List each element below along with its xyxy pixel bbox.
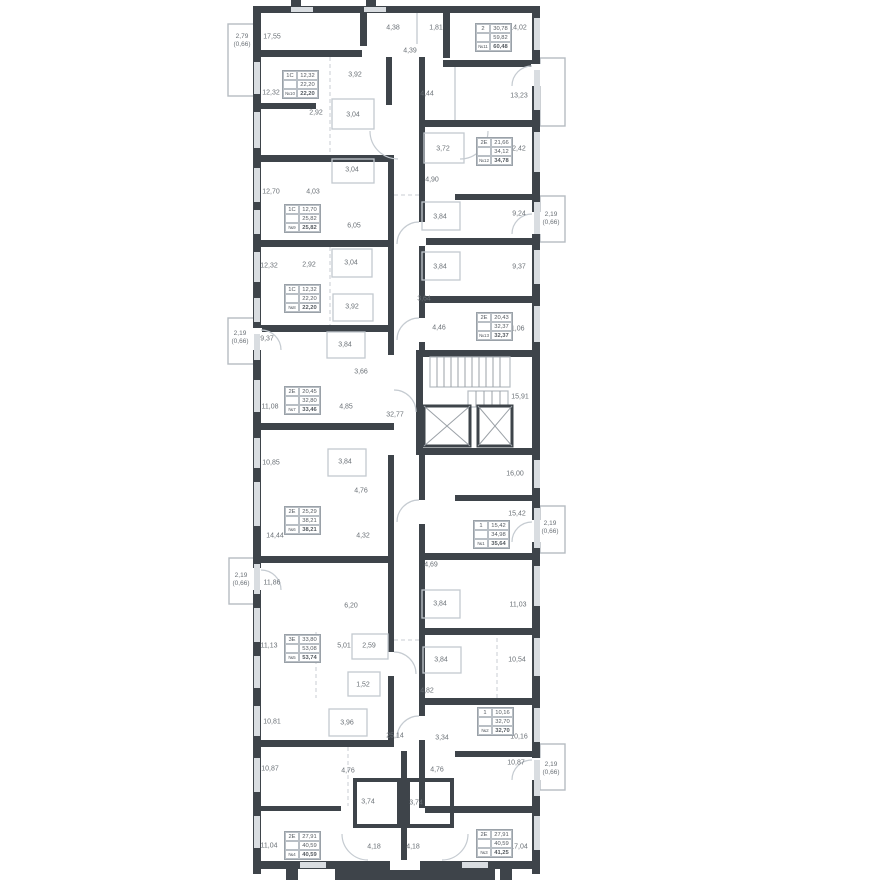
apt-spacer: [477, 147, 491, 156]
room-area-label: 3,92: [345, 304, 359, 311]
apt-total-area: 40,59: [299, 850, 320, 859]
apt-number: №3: [477, 848, 491, 857]
apt-number: №1: [474, 539, 488, 548]
apt-total-area: 33,46: [299, 405, 320, 414]
apt-living-area: 12,70: [299, 205, 320, 214]
apartment-info-box: 110,16 32,70 №232,70: [477, 707, 514, 736]
balcony-area: 2,19: [543, 211, 560, 219]
room-area-label: 4,32: [356, 533, 370, 540]
room-area-label: 11,03: [510, 602, 527, 609]
room-area-label: 4,39: [403, 48, 417, 55]
room-area-label: 10,54: [508, 657, 526, 664]
apt-living-area: 15,42: [488, 521, 509, 530]
room-area-label: 4,03: [306, 189, 320, 196]
apt-total-area: 53,74: [299, 653, 320, 662]
room-area-label: 1,52: [356, 682, 370, 689]
room-area-label: 11,08: [262, 404, 279, 411]
apt-living-area: 27,91: [491, 830, 512, 839]
apt-spacer: [474, 530, 488, 539]
apt-total-area: 41,25: [491, 848, 512, 857]
room-area-label: 3,84: [338, 342, 352, 349]
apt-area: 32,80: [299, 396, 320, 405]
room-area-label: 3,34: [435, 735, 449, 742]
balcony-coef: (0,66): [233, 580, 250, 588]
room-area-label: 4,18: [367, 844, 381, 851]
apt-total-area: 22,20: [297, 89, 318, 98]
room-area-label: 6,05: [347, 223, 361, 230]
apt-area: 53,08: [299, 644, 320, 653]
apt-area: 22,20: [297, 80, 318, 89]
room-area-label: 4,85: [339, 404, 353, 411]
room-area-label: 25,14: [386, 733, 404, 740]
apartment-info-box: 3Е33,80 53,08 №553,74: [284, 634, 321, 663]
apt-total-area: 34,78: [491, 156, 512, 165]
apt-spacer: [478, 717, 492, 726]
room-area-label: 3,64: [417, 296, 431, 303]
apt-area: 34,12: [491, 147, 512, 156]
elevators: [424, 406, 512, 446]
apt-number: №13: [477, 331, 491, 340]
apartment-info-box: 115,42 34,98 №135,64: [473, 520, 510, 549]
apartment-info-box: 2Е27,91 40,59 №341,25: [476, 829, 513, 858]
room-area-label: 2,92: [302, 262, 316, 269]
apt-total-area: 22,20: [299, 303, 320, 312]
apt-area: 22,20: [299, 294, 320, 303]
apt-total-area: 32,37: [491, 331, 512, 340]
room-area-label: 5,01: [337, 643, 351, 650]
room-area-label: 15,42: [508, 511, 526, 518]
apt-spacer: [477, 322, 491, 331]
apt-area: 25,82: [299, 214, 320, 223]
apt-total-area: 32,70: [492, 726, 513, 735]
room-area-label: 1,81: [429, 25, 443, 32]
room-area-label: 9,37: [512, 264, 526, 271]
room-area-label: 3,04: [345, 167, 359, 174]
apt-number: №2: [478, 726, 492, 735]
apt-number: №10: [283, 89, 297, 98]
room-area-label: 12,70: [262, 189, 280, 196]
room-area-label: 10,87: [261, 766, 279, 773]
balcony-area-label: 2,19(0,66): [542, 520, 559, 536]
room-area-label: 2,59: [362, 643, 376, 650]
room-area-label: 3,04: [346, 112, 360, 119]
room-area-label: 9,37: [260, 336, 274, 343]
apt-type: 2Е: [477, 313, 491, 322]
room-area-label: 11,04: [261, 843, 278, 850]
room-area-label: 4,18: [406, 844, 420, 851]
balcony-outlines: [228, 24, 565, 790]
apt-type: 2Е: [285, 832, 299, 841]
balcony-area-label: 2,19(0,66): [233, 572, 250, 588]
balcony-area-label: 2,19(0,66): [543, 761, 560, 777]
room-area-label: 13,23: [510, 93, 528, 100]
apt-type: 1С: [285, 285, 299, 294]
room-area-label: 3,84: [434, 657, 448, 664]
apt-type: 1С: [285, 205, 299, 214]
room-area-label: 3,84: [433, 214, 447, 221]
room-area-label: 16,00: [506, 471, 524, 478]
room-area-label: 2,92: [309, 110, 323, 117]
apt-spacer: [476, 33, 490, 42]
apt-area: 40,59: [299, 841, 320, 850]
room-area-label: 4,90: [425, 177, 439, 184]
apt-area: 59,82: [490, 33, 511, 42]
room-area-label: 3,92: [348, 72, 362, 79]
apartment-info-box: 2Е21,66 34,12 №1234,78: [476, 137, 513, 166]
apt-living-area: 30,78: [490, 24, 511, 33]
apt-spacer: [477, 839, 491, 848]
room-area-label: 3,74: [409, 800, 423, 807]
apt-living-area: 10,16: [492, 708, 513, 717]
apt-area: 34,98: [488, 530, 509, 539]
apt-living-area: 20,43: [491, 313, 512, 322]
apartment-info-box: 2Е27,91 40,59 №440,59: [284, 831, 321, 860]
room-area-label: 3,72: [436, 146, 450, 153]
apt-number: №9: [285, 223, 299, 232]
apartment-info-box: 2Е20,43 32,37 №1332,37: [476, 312, 513, 341]
apt-area: 32,70: [492, 717, 513, 726]
apartment-info-box: 1С12,32 22,20 №1022,20: [282, 70, 319, 99]
apt-number: №11: [476, 42, 490, 51]
apt-living-area: 12,32: [297, 71, 318, 80]
apt-type: 2Е: [477, 138, 491, 147]
apt-type: 1: [478, 708, 492, 717]
apt-number: №12: [477, 156, 491, 165]
balcony-coef: (0,66): [234, 41, 251, 49]
apt-spacer: [285, 396, 299, 405]
apartment-info-box: 1С12,32 22,20 №822,20: [284, 284, 321, 313]
staircase: [430, 357, 510, 407]
room-area-label: 3,84: [433, 264, 447, 271]
apt-spacer: [285, 516, 299, 525]
apartment-info-box: 2Е20,45 32,80 №733,46: [284, 386, 321, 415]
apt-type: 3Е: [285, 635, 299, 644]
apt-number: №7: [285, 405, 299, 414]
outer-walls: [253, 0, 540, 880]
apt-spacer: [285, 644, 299, 653]
apt-spacer: [285, 214, 299, 223]
room-area-label: 4,82: [420, 688, 434, 695]
balcony-coef: (0,66): [542, 528, 559, 536]
room-area-label: 11,13: [261, 643, 278, 650]
balcony-area-label: 2,19(0,66): [543, 211, 560, 227]
apt-area: 40,59: [491, 839, 512, 848]
room-area-label: 3,66: [354, 369, 368, 376]
room-area-label: 12,32: [262, 90, 280, 97]
apt-living-area: 12,32: [299, 285, 320, 294]
balcony-area-label: 2,79(0,66): [234, 33, 251, 49]
apt-spacer: [283, 80, 297, 89]
balcony-area: 2,19: [542, 520, 559, 528]
apt-number: №4: [285, 850, 299, 859]
apt-total-area: 25,82: [299, 223, 320, 232]
room-area-label: 11,86: [264, 580, 281, 587]
room-area-label: 4,76: [430, 767, 444, 774]
apt-number: №8: [285, 303, 299, 312]
apt-spacer: [285, 841, 299, 850]
room-area-label: 4,69: [424, 562, 438, 569]
room-area-label: 9,24: [512, 211, 526, 218]
room-area-label: 3,96: [340, 720, 354, 727]
apt-type: 2: [476, 24, 490, 33]
apt-living-area: 27,91: [299, 832, 320, 841]
apt-number: №5: [285, 653, 299, 662]
room-area-label: 3,04: [344, 260, 358, 267]
apt-total-area: 38,21: [299, 525, 320, 534]
apt-area: 32,37: [491, 322, 512, 331]
apt-area: 38,21: [299, 516, 320, 525]
room-area-label: 10,85: [262, 460, 280, 467]
room-area-label: 4,46: [432, 325, 446, 332]
balcony-area: 2,79: [234, 33, 251, 41]
room-area-label: 12,32: [260, 263, 278, 270]
apt-spacer: [285, 294, 299, 303]
apt-living-area: 33,80: [299, 635, 320, 644]
room-area-label: 3,84: [338, 459, 352, 466]
balcony-coef: (0,66): [543, 219, 560, 227]
balcony-coef: (0,66): [543, 769, 560, 777]
apt-type: 2Е: [477, 830, 491, 839]
room-area-label: 14,44: [266, 533, 284, 540]
floor-plan-canvas: 17,55 4,38 1,81 14,02 4,39 3,92 12,32 4,…: [0, 0, 880, 880]
room-area-label: 10,87: [507, 760, 525, 767]
apt-type: 2Е: [285, 507, 299, 516]
apt-type: 1: [474, 521, 488, 530]
room-area-label: 4,76: [354, 488, 368, 495]
apt-living-area: 21,66: [491, 138, 512, 147]
room-area-label: 32,77: [386, 412, 404, 419]
floor-plan-drawing: [0, 0, 880, 880]
balcony-area: 2,19: [543, 761, 560, 769]
room-area-label: 4,76: [341, 768, 355, 775]
apt-total-area: 60,48: [490, 42, 511, 51]
apartment-info-box: 2Е25,29 38,21 №638,21: [284, 506, 321, 535]
apt-total-area: 35,64: [488, 539, 509, 548]
door-openings: [252, 64, 541, 870]
room-area-label: 3,74: [361, 799, 375, 806]
room-area-label: 4,38: [386, 25, 400, 32]
apartment-info-box: 1С12,70 25,82 №925,82: [284, 204, 321, 233]
apt-living-area: 25,29: [299, 507, 320, 516]
balcony-coef: (0,66): [232, 338, 249, 346]
room-area-label: 10,81: [263, 719, 281, 726]
room-area-label: 4,44: [420, 91, 434, 98]
room-area-label: 3,84: [433, 601, 447, 608]
room-area-label: 17,55: [263, 34, 281, 41]
balcony-area: 2,19: [233, 572, 250, 580]
apt-type: 1С: [283, 71, 297, 80]
balcony-area-label: 2,19(0,66): [232, 330, 249, 346]
balcony-area: 2,19: [232, 330, 249, 338]
apartment-info-box: 230,78 59,82 №1160,48: [475, 23, 512, 52]
apt-number: №6: [285, 525, 299, 534]
apt-type: 2Е: [285, 387, 299, 396]
apt-living-area: 20,45: [299, 387, 320, 396]
room-area-label: 6,20: [344, 603, 358, 610]
room-area-label: 15,91: [511, 394, 529, 401]
